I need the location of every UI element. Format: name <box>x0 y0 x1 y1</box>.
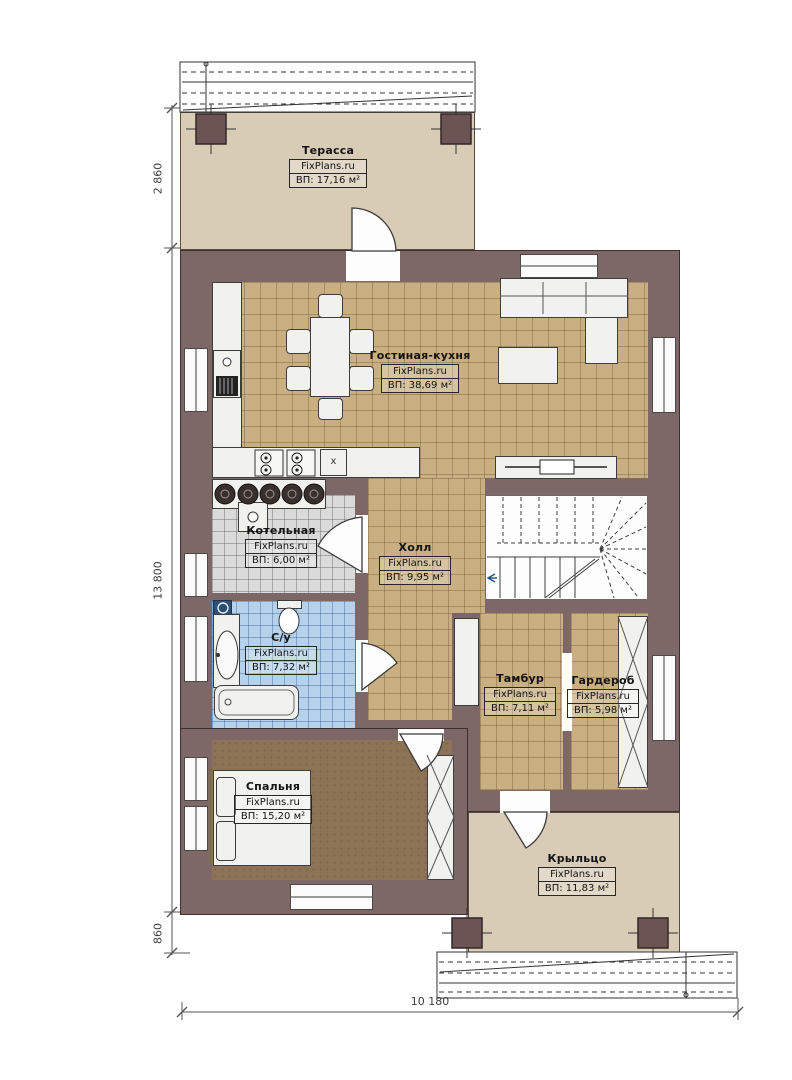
room-info-box: FixPlans.ru ВП: 17,16 м² <box>289 159 367 188</box>
entrance-door-gap <box>500 791 550 813</box>
room-name: Холл <box>350 541 480 554</box>
bathroom-door-gap <box>356 640 368 692</box>
kitchen-counter-bottom <box>212 447 420 478</box>
room-label-porch: Крыльцо FixPlans.ru ВП: 11,83 м² <box>512 852 642 896</box>
floor-plan: x <box>0 0 792 1080</box>
dimension-porch-offset: 860 <box>152 899 165 969</box>
hall-floor-lower <box>368 613 452 720</box>
sofa-chaise <box>585 317 618 364</box>
sofa-back <box>500 278 628 318</box>
room-info-box: FixPlans.ru ВП: 15,20 м² <box>234 795 312 824</box>
staircase-area <box>485 495 648 600</box>
boiler-appliance-row <box>212 479 326 509</box>
room-area: ВП: 17,16 м² <box>290 173 366 187</box>
room-label-bedroom: Спальня FixPlans.ru ВП: 15,20 м² <box>208 780 338 824</box>
room-label-wardrobe: Гардероб FixPlans.ru ВП: 5,98 м² <box>538 674 668 718</box>
brand-label: FixPlans.ru <box>382 365 458 378</box>
room-info-box: FixPlans.ru ВП: 6,00 м² <box>245 539 317 568</box>
room-label-boiler: Котельная FixPlans.ru ВП: 6,00 м² <box>216 524 346 568</box>
room-info-box: FixPlans.ru ВП: 9,95 м² <box>379 556 451 585</box>
window-bathroom-left <box>184 616 208 682</box>
room-name: Гардероб <box>538 674 668 687</box>
room-name: Гостиная-кухня <box>355 349 485 362</box>
bedroom-door-gap <box>398 729 444 741</box>
room-info-box: FixPlans.ru ВП: 5,98 м² <box>567 689 639 718</box>
room-area: ВП: 9,95 м² <box>380 570 450 584</box>
room-area: ВП: 11,83 м² <box>539 881 615 895</box>
window-bedroom-left-2 <box>184 806 208 851</box>
window-bedroom-left-1 <box>184 757 208 801</box>
dimension-house-height: 13 800 <box>152 546 165 616</box>
dimension-total-width: 10 180 <box>395 995 465 1008</box>
room-label-living: Гостиная-кухня FixPlans.ru ВП: 38,69 м² <box>355 349 485 393</box>
window-kitchen-left <box>184 348 208 412</box>
room-name: Котельная <box>216 524 346 537</box>
dining-chair <box>318 294 343 318</box>
dining-table <box>310 317 350 397</box>
room-info-box: FixPlans.ru ВП: 38,69 м² <box>381 364 459 393</box>
dining-chair <box>286 329 311 354</box>
window-boiler-left <box>184 553 208 597</box>
brand-label: FixPlans.ru <box>246 540 316 553</box>
room-name: Крыльцо <box>512 852 642 865</box>
dimension-terrace-height: 2 860 <box>152 144 165 214</box>
tv-stand <box>495 456 617 479</box>
terrace-roof-hatch <box>180 62 475 112</box>
room-name: Спальня <box>208 780 338 793</box>
bathtub <box>214 685 299 720</box>
room-area: ВП: 15,20 м² <box>235 809 311 823</box>
brand-label: FixPlans.ru <box>235 796 311 809</box>
porch-roof-hatch <box>437 952 737 998</box>
brand-label: FixPlans.ru <box>539 868 615 881</box>
room-label-bathroom: С/у FixPlans.ru ВП: 7,32 м² <box>216 631 346 675</box>
dining-chair <box>318 398 343 420</box>
dining-chair <box>286 366 311 391</box>
window-bedroom-bottom <box>290 884 373 910</box>
room-info-box: FixPlans.ru ВП: 11,83 м² <box>538 867 616 896</box>
room-area: ВП: 7,32 м² <box>246 660 316 674</box>
bed-pillow <box>216 821 236 861</box>
brand-label: FixPlans.ru <box>290 160 366 173</box>
room-area: ВП: 38,69 м² <box>382 378 458 392</box>
toilet-tank <box>277 600 302 609</box>
room-label-terrace: Терасса FixPlans.ru ВП: 17,16 м² <box>263 144 393 188</box>
kitchen-cabinet-mark: x <box>320 456 347 467</box>
room-name: Терасса <box>263 144 393 157</box>
window-living-right <box>652 337 676 413</box>
brand-label: FixPlans.ru <box>246 647 316 660</box>
room-area: ВП: 6,00 м² <box>246 553 316 567</box>
room-area: ВП: 5,98 м² <box>568 703 638 717</box>
room-info-box: FixPlans.ru ВП: 7,32 м² <box>245 646 317 675</box>
brand-label: FixPlans.ru <box>568 690 638 703</box>
room-label-hall: Холл FixPlans.ru ВП: 9,95 м² <box>350 541 480 585</box>
kitchen-sink-unit <box>213 350 241 398</box>
brand-label: FixPlans.ru <box>380 557 450 570</box>
coffee-table <box>498 347 558 384</box>
window-living-top <box>520 254 598 278</box>
terrace-door-gap <box>346 251 400 281</box>
bedroom-wardrobe-cabinet <box>427 755 454 880</box>
room-name: С/у <box>216 631 346 644</box>
